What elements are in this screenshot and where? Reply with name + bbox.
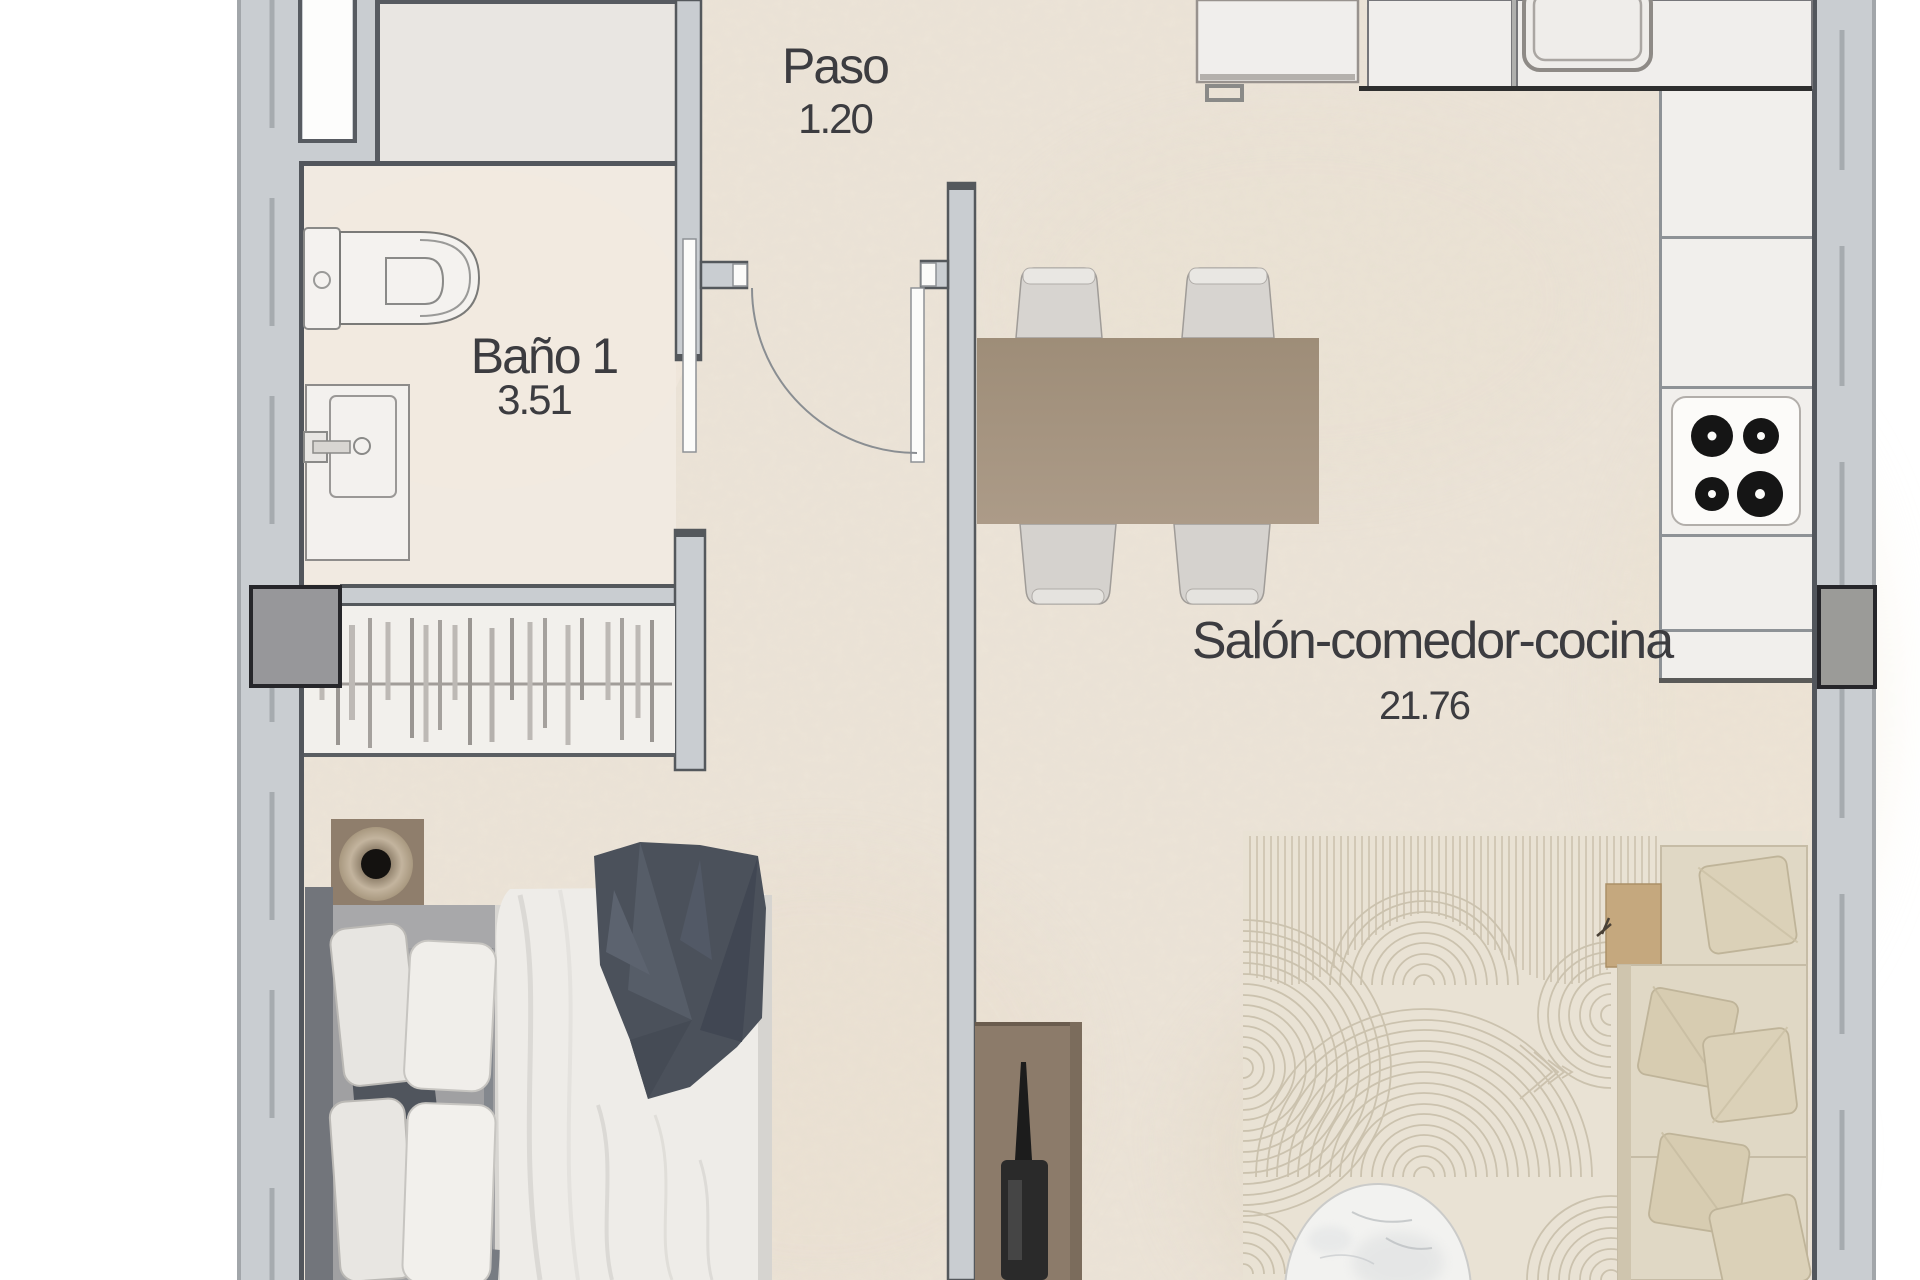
svg-text:Paso: Paso: [782, 38, 888, 94]
svg-text:Salón-comedor-cocina: Salón-comedor-cocina: [1192, 612, 1674, 670]
svg-text:3.51: 3.51: [497, 376, 571, 423]
svg-text:1.20: 1.20: [798, 95, 872, 142]
svg-text:21.76: 21.76: [1379, 684, 1470, 728]
